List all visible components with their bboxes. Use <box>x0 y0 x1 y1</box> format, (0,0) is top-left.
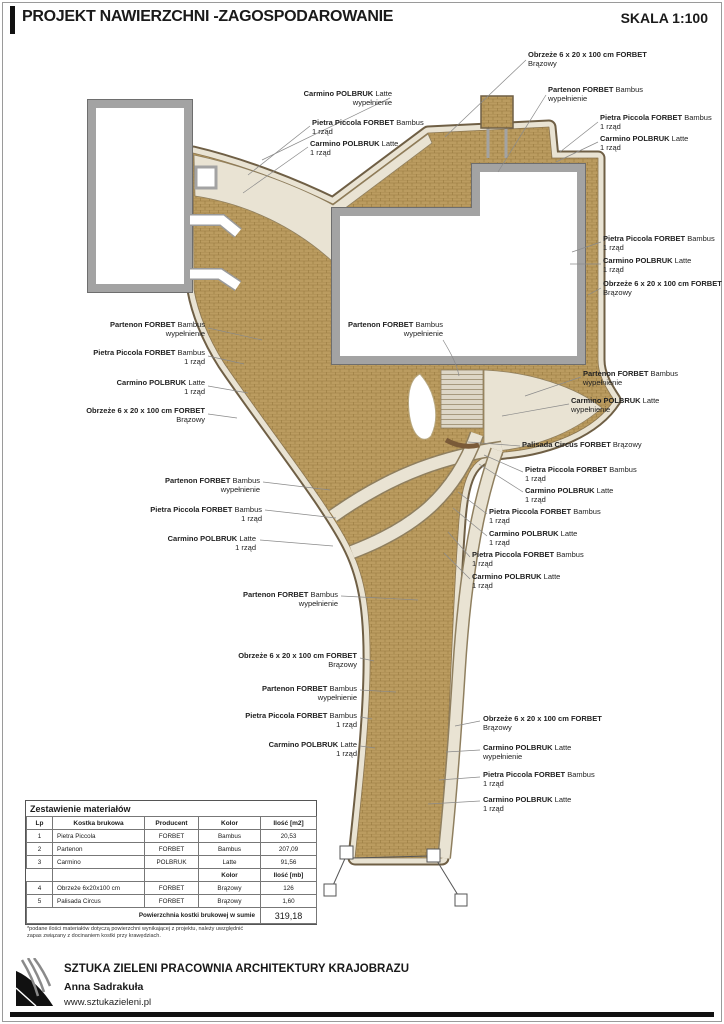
annotation-label: Partenon FORBET Bambuswypełnienie <box>165 476 260 494</box>
table-header-row: LpKostka brukowaProducentKolorIlość [m2] <box>27 817 317 830</box>
footer-company: SZTUKA ZIELENI PRACOWNIA ARCHITEKTURY KR… <box>64 963 409 975</box>
annotation-label: Pietra Piccola FORBET Bambus1 rząd <box>150 505 262 523</box>
table-row: 3CarminoPOLBRUKLatte91,56 <box>27 856 317 869</box>
table-total-row: Powierzchnia kostki brukowej w sumie319,… <box>27 908 317 924</box>
annotation-label: Carmino POLBRUK Latte1 rząd <box>603 256 691 274</box>
table-row: 2PartenonFORBETBambus207,09 <box>27 843 317 856</box>
annotation-label: Carmino POLBRUK Latte1 rząd <box>269 740 357 758</box>
annotation-label: Pietra Piccola FORBET Bambus1 rząd <box>603 234 715 252</box>
footer-website[interactable]: www.sztukazieleni.pl <box>64 997 151 1008</box>
garage <box>92 104 188 288</box>
table-row: 1Pietra PiccolaFORBETBambus20,53 <box>27 830 317 843</box>
annotation-label: Pietra Piccola FORBET Bambus1 rząd <box>93 348 205 366</box>
annotation-label: Pietra Piccola FORBET Bambus1 rząd <box>312 118 424 136</box>
annotation-label: Carmino POLBRUK Lattewypełnienie <box>571 396 659 414</box>
annotation-label: Carmino POLBRUK Latte1 rząd <box>525 486 613 504</box>
company-logo-icon <box>14 958 58 1008</box>
annotation-label: Carmino POLBRUK Latte1 rząd <box>117 378 205 396</box>
table-subheader-row: KolorIlość [mb] <box>27 869 317 882</box>
annotation-label: Carmino POLBRUK Lattewypełnienie <box>304 89 392 107</box>
annotation-label: Partenon FORBET Bambuswypełnienie <box>348 320 443 338</box>
annotation-label: Pietra Piccola FORBET Bambus1 rząd <box>600 113 712 131</box>
annotation-label: Obrzeże 6 x 20 x 100 cm FORBETBrązowy <box>483 714 602 732</box>
annotation-label: Obrzeże 6 x 20 x 100 cm FORBETBrązowy <box>603 279 722 297</box>
annotation-label: Obrzeże 6 x 20 x 100 cm FORBETBrązowy <box>86 406 205 424</box>
annotation-label: Partenon FORBET Bambuswypełnienie <box>243 590 338 608</box>
footer-author: Anna Sadrakuła <box>64 981 143 993</box>
table-row: 5Palisada CircusFORBETBrązowy1,60 <box>27 895 317 908</box>
annotation-label: Carmino POLBRUK Latte1 rząd <box>600 134 688 152</box>
drawing-sheet: PROJEKT NAWIERZCHNI -ZAGOSPODAROWANIE SK… <box>0 0 724 1024</box>
table-footnote: *podane ilości materiałów dotyczą powier… <box>27 926 307 940</box>
materials-table-title: Zestawienie materiałów <box>26 801 316 816</box>
annotation-label: Partenon FORBET Bambuswypełnienie <box>262 684 357 702</box>
annotation-label: Pietra Piccola FORBET Bambus1 rząd <box>472 550 584 568</box>
annotation-label: Palisada Circus FORBET Brązowy <box>522 440 642 449</box>
annotation-label: Pietra Piccola FORBET Bambus1 rząd <box>525 465 637 483</box>
annotation-label: Pietra Piccola FORBET Bambus1 rząd <box>245 711 357 729</box>
annotation-label: Partenon FORBET Bambuswypełnienie <box>548 85 643 103</box>
stairs <box>441 370 483 428</box>
footer-rule <box>10 1012 714 1017</box>
wall-recess <box>196 167 216 188</box>
annotation-label: Carmino POLBRUK Latte1 rząd <box>168 534 256 552</box>
annotation-label: Partenon FORBET Bambuswypełnienie <box>110 320 205 338</box>
materials-table: Zestawienie materiałów LpKostka brukowaP… <box>25 800 317 925</box>
annotation-label: Carmino POLBRUK Latte1 rząd <box>483 795 571 813</box>
table-row: 4Obrzeże 6x20x100 cmFORBETBrązowy126 <box>27 882 317 895</box>
annotation-label: Obrzeże 6 x 20 x 100 cm FORBETBrązowy <box>528 50 647 68</box>
annotation-label: Pietra Piccola FORBET Bambus1 rząd <box>483 770 595 788</box>
annotation-label: Obrzeże 6 x 20 x 100 cm FORBETBrązowy <box>238 651 357 669</box>
annotation-label: Carmino POLBRUK Latte1 rząd <box>489 529 577 547</box>
annotation-label: Pietra Piccola FORBET Bambus1 rząd <box>489 507 601 525</box>
annotation-label: Carmino POLBRUK Lattewypełnienie <box>483 743 571 761</box>
annotation-label: Partenon FORBET Bambuswypełnienie <box>583 369 678 387</box>
annotation-label: Carmino POLBRUK Latte1 rząd <box>310 139 398 157</box>
annotation-label: Carmino POLBRUK Latte1 rząd <box>472 572 560 590</box>
